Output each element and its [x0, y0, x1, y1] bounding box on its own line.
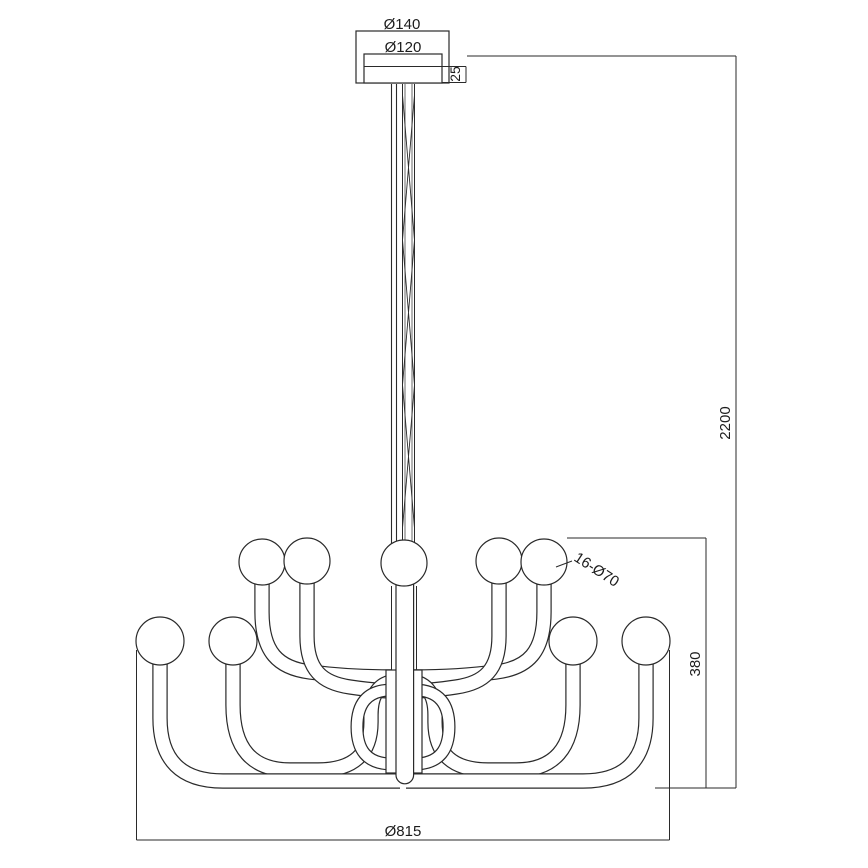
bulb — [209, 617, 257, 665]
bulb — [521, 539, 567, 585]
arm-upper-right-1 — [414, 568, 544, 677]
suspension-stem — [392, 84, 415, 552]
label-canopy-height: 25 — [447, 66, 463, 82]
label-canopy-outer: Ø140 — [384, 16, 421, 33]
label-bulb-spec: 16-Ø70 — [571, 549, 622, 591]
bulb — [622, 617, 670, 665]
bulb — [239, 539, 285, 585]
bulb — [136, 617, 184, 665]
label-canopy-inner: Ø120 — [385, 39, 422, 56]
twisted-cable — [403, 84, 415, 548]
technical-drawing-page: Ø140 Ø120 25 2200 380 16-Ø70 Ø815 — [0, 0, 868, 868]
chandelier-drawing: Ø140 Ø120 25 2200 380 16-Ø70 Ø815 — [0, 0, 868, 868]
bulb — [284, 538, 330, 584]
bulb — [549, 617, 597, 665]
label-total-drop: 2200 — [717, 406, 734, 439]
label-fixture-diameter: Ø815 — [385, 823, 422, 840]
label-fixture-height: 380 — [687, 651, 704, 676]
bulb-center — [381, 540, 427, 586]
bulb — [476, 538, 522, 584]
canopy-inner — [364, 54, 442, 83]
center-tube — [396, 578, 414, 784]
arm-upper-left-1 — [262, 568, 392, 677]
